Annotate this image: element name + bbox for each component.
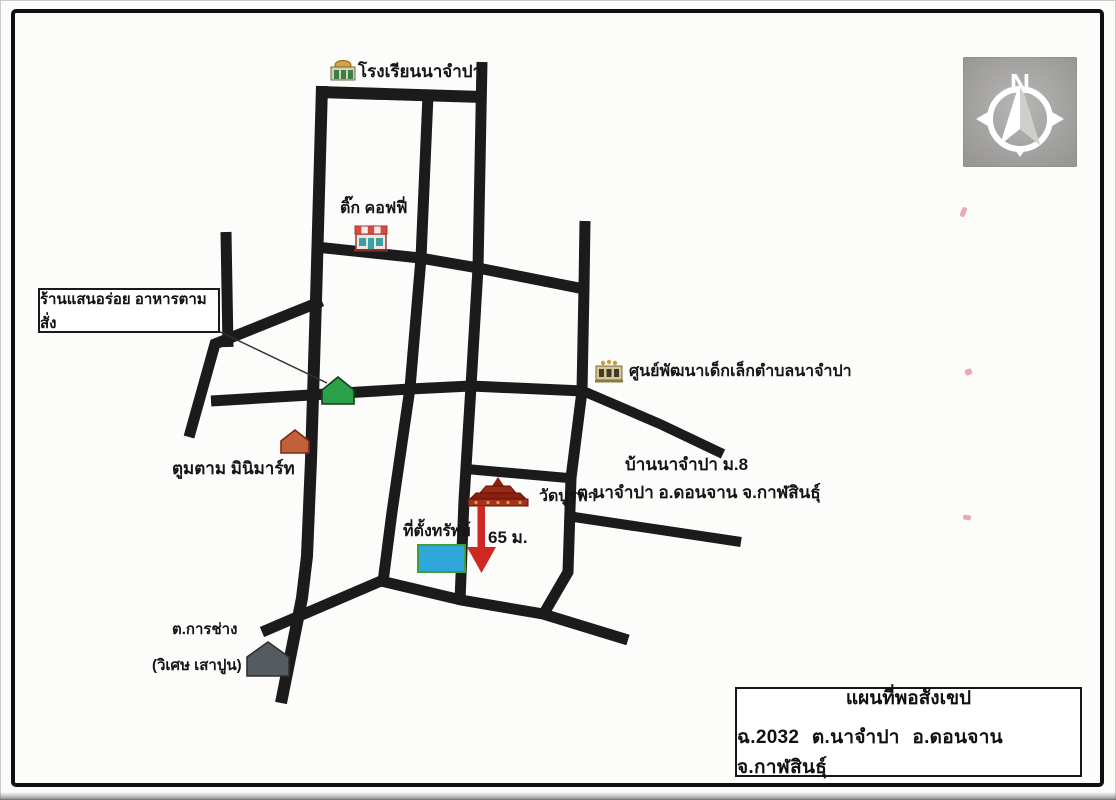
map-page: N โรงเรียนนาจำปา ติ๊ก คอฟฟี่ ร้านแสนอร่อ…: [0, 0, 1116, 800]
scan-shadow: [0, 792, 1116, 800]
page-border: [11, 9, 1104, 787]
